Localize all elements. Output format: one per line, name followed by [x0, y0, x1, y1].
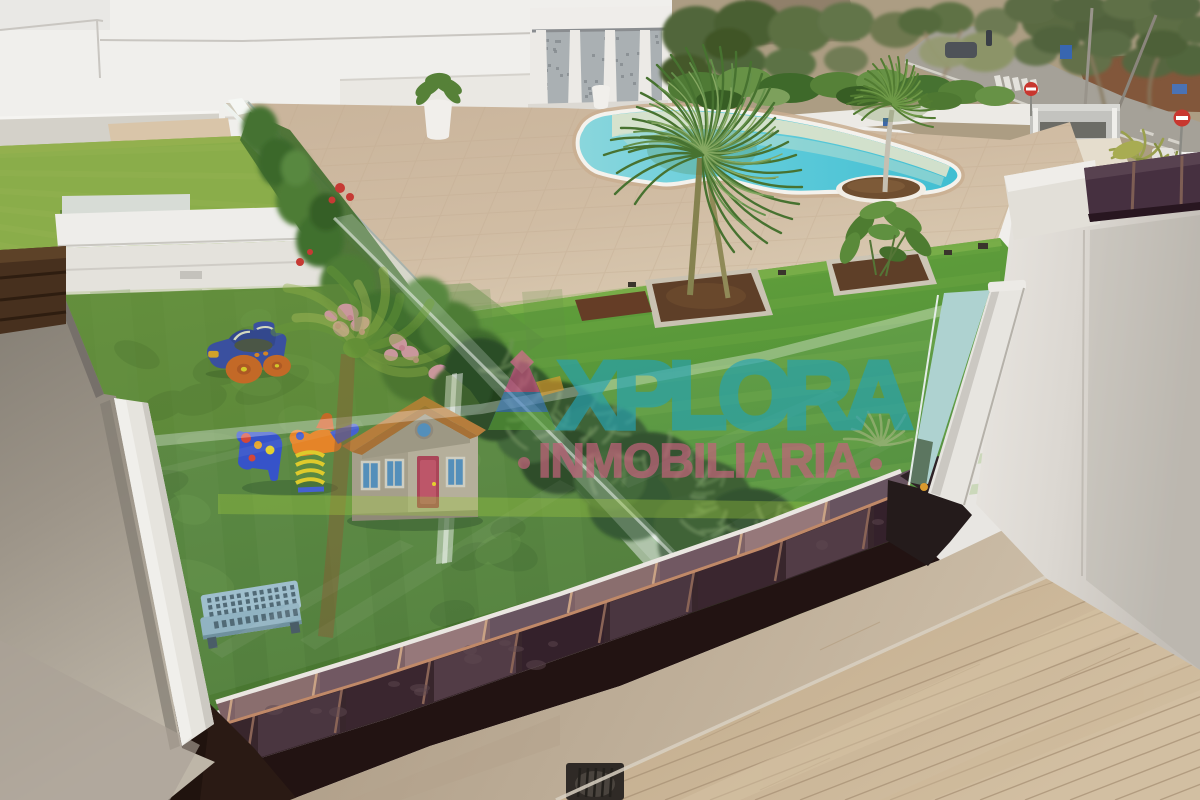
svg-text:XPLORA: XPLORA — [558, 342, 911, 449]
svg-text:INMOBILIARIA: INMOBILIARIA — [538, 435, 860, 488]
